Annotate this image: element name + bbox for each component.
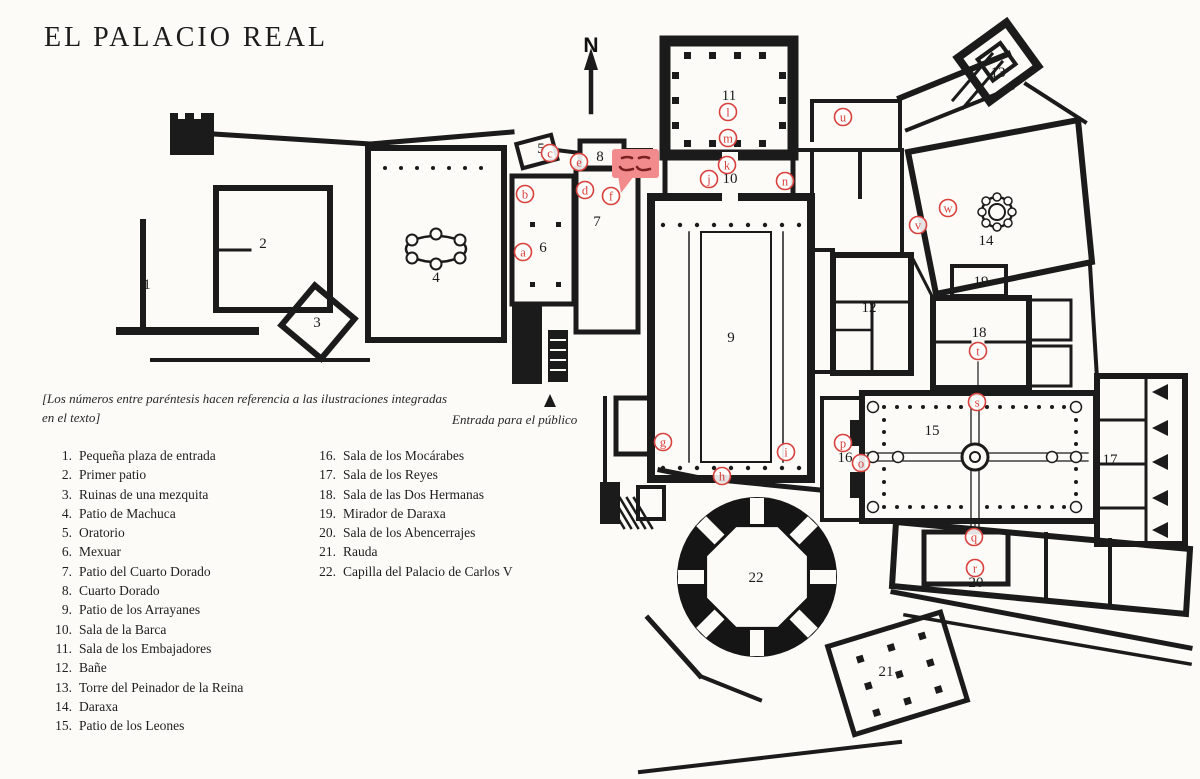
bubble-tail bbox=[618, 176, 634, 193]
plan-letter-v: v bbox=[910, 217, 927, 234]
svg-text:n: n bbox=[782, 175, 789, 189]
plan-letter-e: e bbox=[571, 154, 588, 171]
plan-letter-n: n bbox=[777, 173, 794, 190]
svg-text:b: b bbox=[522, 188, 528, 202]
svg-text:a: a bbox=[520, 246, 526, 260]
plan-number-1: 1 bbox=[143, 277, 151, 293]
svg-text:o: o bbox=[858, 457, 864, 471]
plan-letter-o: o bbox=[853, 455, 870, 472]
plan-letter-u: u bbox=[835, 109, 852, 126]
plan-number-20: 20 bbox=[969, 575, 984, 591]
plan-letter-w: w bbox=[940, 200, 957, 217]
svg-text:g: g bbox=[660, 436, 667, 450]
plan-letter-c: c bbox=[542, 145, 559, 162]
plan-letter-d: d bbox=[577, 182, 594, 199]
plan-number-6: 6 bbox=[539, 240, 547, 256]
svg-text:i: i bbox=[784, 446, 788, 460]
floor-plan: N ここ 12345678910111213141516171819202122… bbox=[0, 0, 1200, 779]
plan-letter-s: s bbox=[969, 394, 986, 411]
svg-text:s: s bbox=[975, 396, 980, 410]
svg-text:k: k bbox=[724, 159, 731, 173]
plan-letter-t: t bbox=[970, 343, 987, 360]
plan-number-3: 3 bbox=[313, 315, 321, 331]
plan-number-17: 17 bbox=[1103, 452, 1119, 468]
plan-letter-f: f bbox=[603, 188, 620, 205]
plan-letter-q: q bbox=[966, 529, 983, 546]
plan-number-15: 15 bbox=[925, 423, 940, 439]
plan-letter-m: m bbox=[720, 130, 737, 147]
svg-text:t: t bbox=[976, 345, 980, 359]
plan-letter-b: b bbox=[517, 186, 534, 203]
svg-text:v: v bbox=[915, 219, 922, 233]
svg-text:j: j bbox=[706, 173, 710, 187]
svg-text:m: m bbox=[723, 132, 733, 146]
plan-letter-k: k bbox=[719, 157, 736, 174]
plan-number-12: 12 bbox=[862, 300, 877, 316]
plan-letter-g: g bbox=[655, 434, 672, 451]
plan-number-11: 11 bbox=[722, 88, 736, 104]
plan-chapel-octagon bbox=[660, 470, 837, 657]
plan-letter-a: a bbox=[515, 244, 532, 261]
svg-text:w: w bbox=[943, 202, 952, 216]
plan-letter-p: p bbox=[835, 435, 852, 452]
plan-number-9: 9 bbox=[727, 330, 735, 346]
plan-letter-i: i bbox=[778, 444, 795, 461]
scanned-floor-plan-page: EL PALACIO REAL [Los números entre parén… bbox=[0, 0, 1200, 779]
plan-letter-j: j bbox=[701, 171, 718, 188]
plan-letter-h: h bbox=[714, 468, 731, 485]
svg-text:d: d bbox=[582, 184, 589, 198]
plan-number-8: 8 bbox=[596, 149, 604, 165]
svg-text:c: c bbox=[547, 147, 553, 161]
svg-text:l: l bbox=[726, 106, 730, 120]
plan-walls-lions-court bbox=[822, 376, 1185, 544]
plan-number-16: 16 bbox=[838, 450, 854, 466]
plan-letter-r: r bbox=[967, 560, 984, 577]
plan-number-22: 22 bbox=[749, 570, 764, 586]
svg-text:e: e bbox=[576, 156, 582, 170]
svg-text:q: q bbox=[971, 531, 978, 545]
plan-number-13: 13 bbox=[991, 65, 1006, 81]
north-compass: N bbox=[583, 34, 598, 112]
plan-number-7: 7 bbox=[593, 214, 601, 230]
plan-number-2: 2 bbox=[259, 236, 267, 252]
svg-text:h: h bbox=[719, 470, 726, 484]
plan-walls-left-wing bbox=[120, 113, 651, 384]
svg-text:p: p bbox=[840, 437, 846, 451]
plan-number-14: 14 bbox=[979, 233, 995, 249]
svg-text:u: u bbox=[840, 111, 847, 125]
plan-number-18: 18 bbox=[972, 325, 987, 341]
plan-number-4: 4 bbox=[432, 270, 440, 286]
plan-letter-l: l bbox=[720, 104, 737, 121]
plan-number-21: 21 bbox=[879, 664, 894, 680]
plan-number-19: 19 bbox=[974, 274, 989, 290]
entrance-triangle-icon bbox=[544, 394, 556, 407]
